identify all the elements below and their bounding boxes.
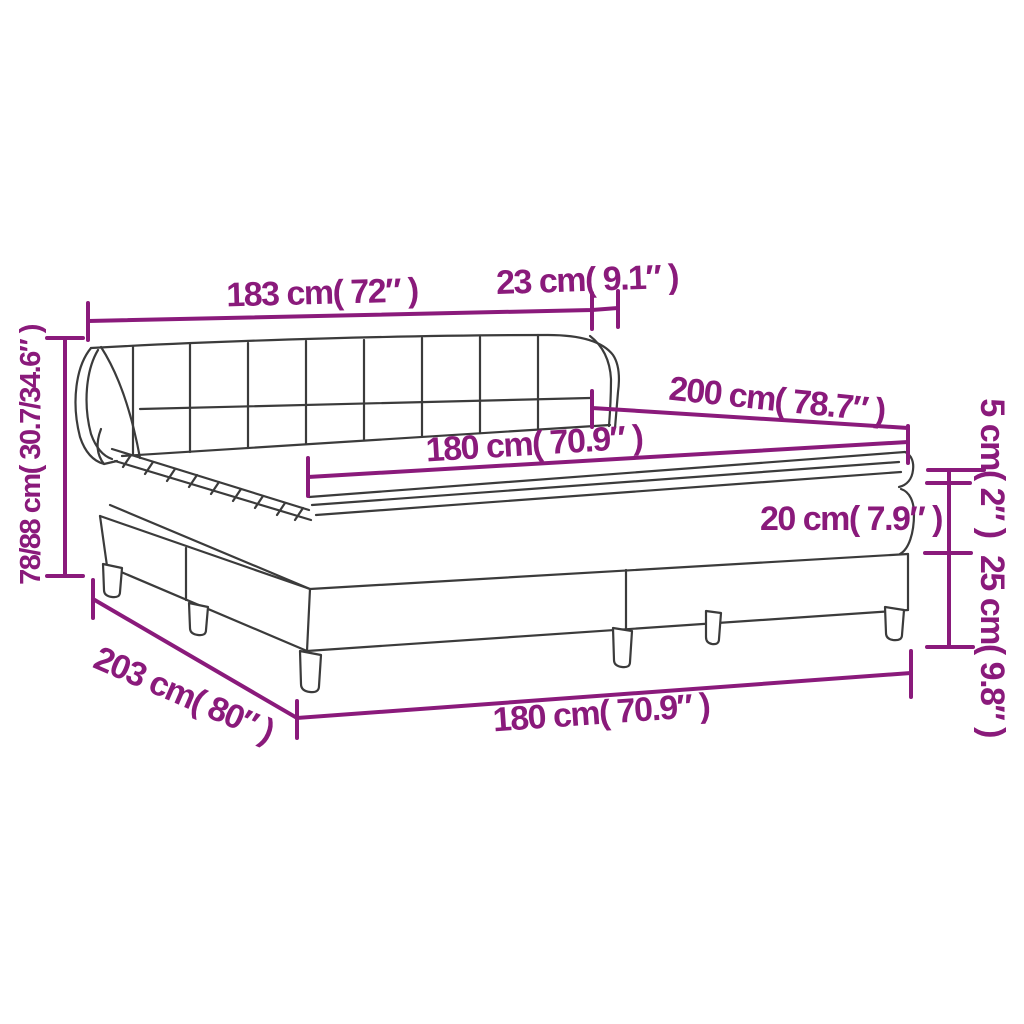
dim-base: 203 cm( 80″ ) 180 cm( 70.9″ ) [88,580,911,750]
headboard-top-right-edge [91,335,619,428]
diagram-canvas: 183 cm( 72″ ) 23 cm( 9.1″ ) 78/88 cm( 30… [0,0,1024,1024]
headboard-left-face-curve [101,347,140,458]
mattress-width-label: 180 cm( 70.9″ ) [425,418,644,469]
bed-leg-5 [706,611,721,644]
bed-leg-3 [300,651,321,692]
base-length-label: 203 cm( 80″ ) [88,639,279,750]
mattress-piping-top [112,449,309,510]
bed-leg-2 [189,603,208,635]
base-bottom-edge [107,566,908,651]
bed-leg-6 [885,607,904,640]
bed-leg-4 [613,628,632,667]
box-spring-base [100,516,908,692]
topper-left-cap [98,429,117,464]
headboard-left-scroll-inner [87,350,112,459]
total-height-label: 78/88 cm( 30.7/34.6″ ) [15,324,47,585]
dim-headboard-width: 183 cm( 72″ ) 23 cm( 9.1″ ) [88,258,679,340]
base-front-corner-edge [307,589,310,651]
headboard-left-scroll-outer [76,348,104,464]
mattress-height-label: 20 cm( 7.9″ ) [760,500,942,538]
mattress-left-bottom-edge [110,505,310,589]
base-width-label: 180 cm( 70.9″ ) [492,686,711,739]
diagram-page: 183 cm( 72″ ) 23 cm( 9.1″ ) 78/88 cm( 30… [0,0,1024,1024]
bed-leg-1 [103,564,122,597]
base-height-label: 25 cm( 9.8″ ) [973,555,1011,737]
base-seams [186,548,626,628]
topper-height-label: 5 cm( 2″ ) [973,398,1011,537]
base-left-edge [100,516,107,566]
headboard-width-label: 183 cm( 72″ ) [226,271,419,314]
headboard-depth-label: 23 cm( 9.1″ ) [495,258,678,302]
topper-bottom-edge [312,462,899,505]
dim-total-height: 78/88 cm( 30.7/34.6″ ) [15,324,83,585]
